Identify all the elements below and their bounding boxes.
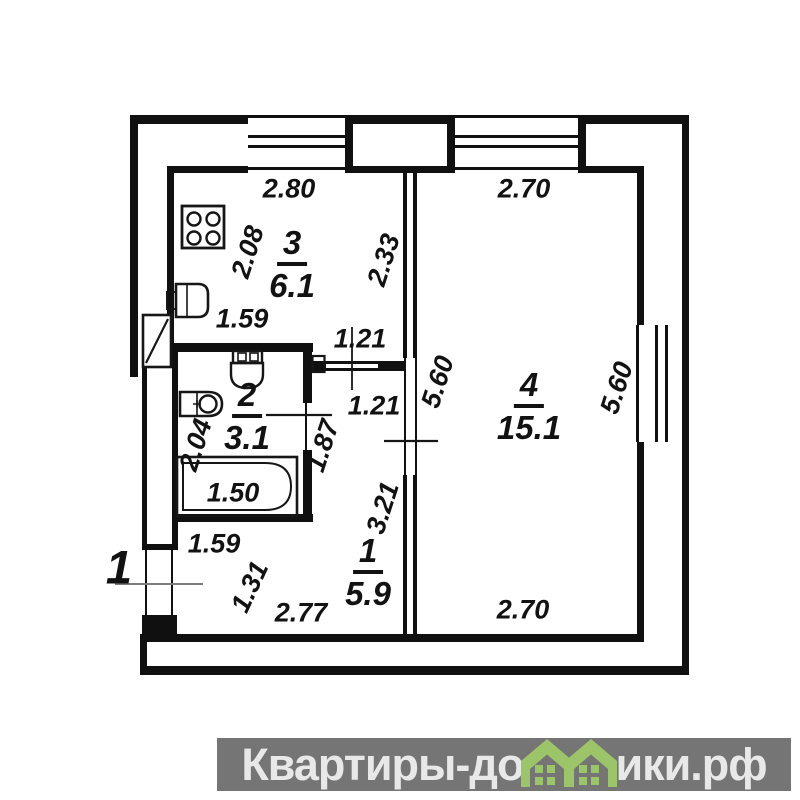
room-label-living-room: 4 15.1	[497, 368, 561, 444]
stove-icon	[182, 206, 224, 248]
floor-plan-page: 2.80 2.70 2.08 2.33 1.59 1.21 1.21 5.60 …	[0, 0, 800, 800]
dim-kitchen-bottom: 1.59	[216, 306, 269, 333]
room-number: 2	[232, 378, 262, 418]
dim-opening-lower: 1.21	[348, 393, 401, 420]
dim-kitchen-top: 2.80	[263, 176, 316, 203]
room-area: 5.9	[345, 574, 391, 610]
dim-opening-upper: 1.21	[334, 326, 387, 353]
watermark-text-right: ики.рф	[615, 742, 766, 787]
room-number: 3	[277, 226, 307, 266]
washbasin-icon	[180, 392, 222, 416]
dim-living-top: 2.70	[498, 176, 551, 203]
watermark-banner: Квартиры-до ики.рф	[217, 738, 791, 791]
room-label-hallway: 1 5.9	[345, 534, 391, 610]
dim-bath-bottom: 1.59	[188, 531, 241, 558]
room-number: 1	[353, 534, 383, 574]
dim-hall-bottom: 2.77	[275, 600, 328, 627]
room-area: 15.1	[497, 408, 561, 444]
entrance-door-icon	[143, 315, 171, 367]
watermark-text-left: Квартиры-до	[241, 742, 523, 787]
dim-living-bottom: 2.70	[497, 597, 550, 624]
dim-bathtub: 1.50	[207, 480, 260, 507]
room-number: 4	[514, 368, 544, 408]
room-label-kitchen: 3 6.1	[269, 226, 315, 302]
room-area: 6.1	[269, 266, 315, 302]
unit-number-label: 1	[106, 544, 132, 591]
room-area: 3.1	[224, 418, 270, 454]
green-houses-icon	[521, 737, 617, 789]
room-label-bathroom: 2 3.1	[224, 378, 270, 454]
